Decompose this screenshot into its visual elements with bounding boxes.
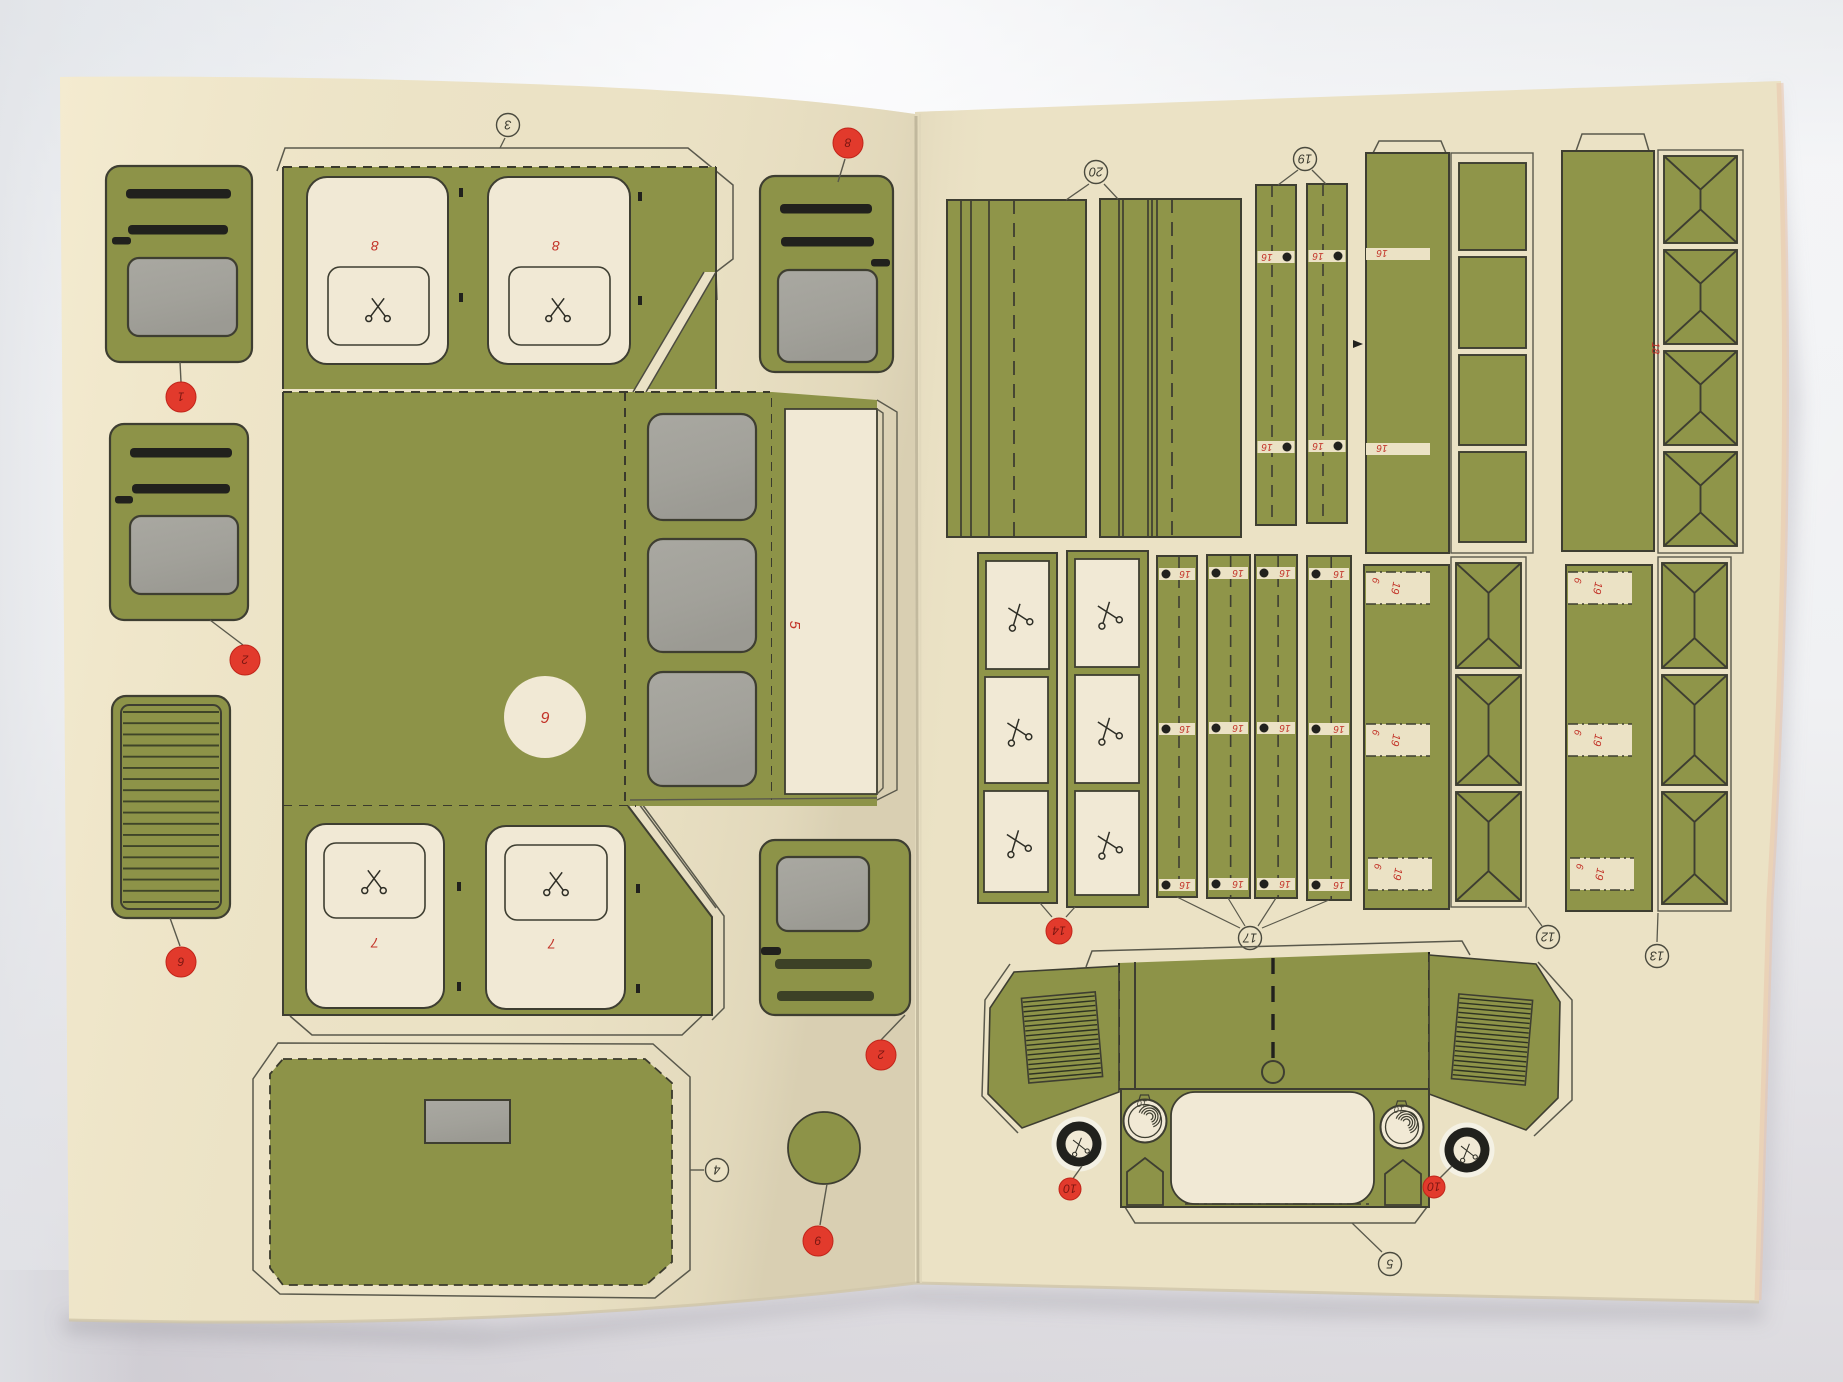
- svg-text:14: 14: [1052, 924, 1066, 938]
- svg-text:13: 13: [1650, 949, 1664, 963]
- svg-text:16: 16: [1333, 568, 1345, 579]
- svg-text:16: 16: [1279, 567, 1291, 578]
- svg-text:2: 2: [241, 653, 249, 667]
- svg-text:18: 18: [1649, 342, 1661, 355]
- svg-text:16: 16: [1179, 723, 1191, 734]
- svg-text:4: 4: [713, 1163, 720, 1177]
- svg-text:19: 19: [1590, 581, 1604, 595]
- svg-text:9: 9: [541, 710, 550, 727]
- svg-text:20: 20: [1089, 165, 1104, 179]
- svg-text:19: 19: [1592, 867, 1606, 881]
- svg-text:19: 19: [1388, 733, 1402, 747]
- svg-text:16: 16: [1312, 250, 1324, 261]
- svg-text:19: 19: [1388, 581, 1402, 595]
- svg-text:2: 2: [877, 1048, 885, 1062]
- svg-text:1: 1: [178, 390, 185, 404]
- svg-text:7: 7: [370, 935, 379, 951]
- svg-text:17: 17: [1242, 931, 1257, 945]
- svg-text:16: 16: [1376, 247, 1388, 258]
- svg-text:19: 19: [1590, 733, 1604, 747]
- svg-text:10: 10: [1427, 1180, 1441, 1194]
- svg-text:10: 10: [1137, 1099, 1147, 1109]
- svg-text:16: 16: [1333, 879, 1345, 890]
- svg-text:16: 16: [1312, 440, 1324, 451]
- svg-text:8: 8: [844, 136, 851, 150]
- svg-text:16: 16: [1261, 441, 1273, 452]
- svg-text:9: 9: [814, 1234, 821, 1248]
- svg-text:16: 16: [1179, 879, 1191, 890]
- svg-text:10: 10: [1063, 1182, 1077, 1196]
- svg-text:8: 8: [552, 238, 560, 254]
- svg-text:16: 16: [1232, 722, 1244, 733]
- svg-text:3: 3: [504, 118, 511, 132]
- svg-text:6: 6: [177, 955, 184, 969]
- svg-text:19: 19: [1298, 152, 1312, 166]
- svg-text:16: 16: [1232, 567, 1244, 578]
- svg-text:16: 16: [1333, 723, 1345, 734]
- svg-text:8: 8: [371, 238, 379, 254]
- svg-text:16: 16: [1179, 568, 1191, 579]
- svg-text:16: 16: [1376, 442, 1388, 453]
- svg-text:10: 10: [1394, 1105, 1404, 1115]
- svg-text:5: 5: [786, 621, 803, 630]
- svg-text:16: 16: [1261, 251, 1273, 262]
- svg-text:5: 5: [1386, 1257, 1393, 1271]
- svg-text:16: 16: [1232, 878, 1244, 889]
- svg-text:16: 16: [1279, 878, 1291, 889]
- svg-text:19: 19: [1390, 867, 1404, 881]
- svg-text:7: 7: [547, 936, 556, 952]
- svg-text:16: 16: [1279, 722, 1291, 733]
- svg-text:12: 12: [1541, 930, 1555, 944]
